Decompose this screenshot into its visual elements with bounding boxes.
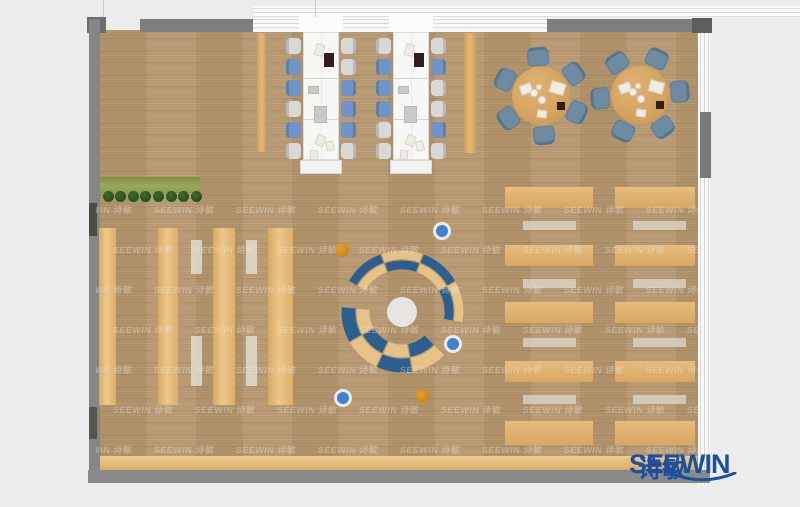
perimeter-wall [140,19,253,32]
table-plate [536,84,542,90]
desk-item-pad [398,86,409,94]
perimeter-wall [547,19,698,32]
watermark-text: SEEWIN 诗敏 [235,443,297,456]
desk-item-dark [324,53,334,67]
window-band-desk-junction [389,16,433,32]
watermark-text: SEEWIN 诗敏 [317,283,379,296]
watermark-text: SEEWIN 诗敏 [96,443,133,456]
watermark-text: SEEWIN 诗敏 [522,323,584,336]
watermark-text: SEEWIN 诗敏 [276,243,338,256]
watermark-text: SEEWIN 诗敏 [96,203,133,216]
watermark-text: SEEWIN 诗敏 [440,323,502,336]
watermark-text: SEEWIN 诗敏 [481,363,543,376]
watermark-text: SEEWIN 诗敏 [235,363,297,376]
table-item-paper [635,108,646,117]
watermark-text: SEEWIN 诗敏 [645,363,702,376]
watermark-text: SEEWIN 诗敏 [194,323,256,336]
office-chair [286,59,301,75]
watermark-text: SEEWIN 诗敏 [235,203,297,216]
office-chair [376,101,391,117]
watermark-text: SEEWIN 诗敏 [194,403,256,416]
table-item-dark [557,102,565,110]
office-chair [341,80,356,96]
office-chair [376,143,391,159]
table-plate [530,89,538,97]
office-chair [341,122,356,138]
watermark-text: SEEWIN 诗敏 [440,243,502,256]
watermark-text: SEEWIN 诗敏 [481,443,543,456]
watermark-text: SEEWIN 诗敏 [563,443,625,456]
watermark-text: SEEWIN 诗敏 [399,203,461,216]
watermark-text: SEEWIN 诗敏 [522,243,584,256]
watermark-text: SEEWIN 诗敏 [96,283,133,296]
watermark-text: SEEWIN 诗敏 [96,363,133,376]
office-chair [341,38,356,54]
floor-plan-render: SEEWIN 诗敏SEEWIN 诗敏SEEWIN 诗敏SEEWIN 诗敏SEEW… [0,0,800,507]
watermark-text: SEEWIN 诗敏 [317,203,379,216]
office-chair [286,143,301,159]
watermark-text: SEEWIN 诗敏 [604,243,666,256]
watermark-text: SEEWIN 诗敏 [563,363,625,376]
office-chair [431,122,446,138]
desk-item-dark [414,53,424,67]
watermark-text: SEEWIN 诗敏 [604,403,666,416]
watermark-text: SEEWIN 诗敏 [358,243,420,256]
office-chair [341,143,356,159]
office-chair [286,38,301,54]
watermark-text: SEEWIN 诗敏 [645,283,702,296]
office-chair [376,38,391,54]
watermark-text: SEEWIN 诗敏 [399,363,461,376]
watermark-text: SEEWIN 诗敏 [358,403,420,416]
office-chair [376,59,391,75]
office-chair [341,59,356,75]
perimeter-wall [692,18,712,33]
desk-item-pad [308,86,319,94]
watermark-text: SEEWIN 诗敏 [686,403,702,416]
watermark-text: SEEWIN 诗敏 [358,323,420,336]
watermark-text: SEEWIN 诗敏 [235,283,297,296]
table-plate [538,96,546,104]
watermark-text: SEEWIN 诗敏 [112,403,174,416]
desk-item-paper [309,150,318,161]
office-chair [286,80,301,96]
desk-end-panel [300,160,342,174]
watermark-layer: SEEWIN 诗敏SEEWIN 诗敏SEEWIN 诗敏SEEWIN 诗敏SEEW… [96,198,702,460]
watermark-text: SEEWIN 诗敏 [153,363,215,376]
desk-end-panel [390,160,432,174]
logo-swoosh-icon [671,472,737,485]
watermark-text: SEEWIN 诗敏 [153,203,215,216]
table-chair [669,80,690,104]
office-chair [341,101,356,117]
watermark-text: SEEWIN 诗敏 [522,403,584,416]
watermark-text: SEEWIN 诗敏 [153,443,215,456]
office-chair [376,80,391,96]
perimeter-wall [700,112,711,178]
office-chair [431,101,446,117]
desk-item-pad [314,106,327,123]
watermark-text: SEEWIN 诗敏 [399,283,461,296]
window-band-desk-junction [299,16,343,32]
mullion-line [315,0,316,17]
watermark-text: SEEWIN 诗敏 [645,203,702,216]
watermark-text: SEEWIN 诗敏 [563,283,625,296]
watermark-text: SEEWIN 诗敏 [276,323,338,336]
wood-plank-counter [257,33,266,152]
watermark-text: SEEWIN 诗敏 [112,243,174,256]
watermark-text: SEEWIN 诗敏 [686,323,702,336]
table-plate [637,95,645,103]
office-chair [431,80,446,96]
watermark-text: SEEWIN 诗敏 [317,363,379,376]
watermark-text: SEEWIN 诗敏 [276,403,338,416]
watermark-text: SEEWIN 诗敏 [399,443,461,456]
table-chair [590,87,611,111]
watermark-text: SEEWIN 诗敏 [481,203,543,216]
watermark-text: SEEWIN 诗敏 [604,323,666,336]
office-chair [376,122,391,138]
watermark-text: SEEWIN 诗敏 [440,403,502,416]
room-layer: SEEWIN 诗敏SEEWIN 诗敏SEEWIN 诗敏SEEWIN 诗敏SEEW… [0,0,800,507]
wood-plank-counter [464,33,476,153]
table-plate [629,88,637,96]
table-chair [526,46,550,67]
table-plate [635,83,641,89]
table-item-paper [536,109,547,118]
desk-item-pad [404,106,417,123]
watermark-text: SEEWIN 诗敏 [317,443,379,456]
watermark-text: SEEWIN 诗敏 [112,323,174,336]
office-chair [286,101,301,117]
perimeter-wall [88,470,710,483]
office-chair [286,122,301,138]
desk-item-paper [399,150,408,161]
watermark-text: SEEWIN 诗敏 [153,283,215,296]
office-chair [431,143,446,159]
table-item-dark [656,101,664,109]
watermark-text: SEEWIN 诗敏 [686,243,702,256]
watermark-text: SEEWIN 诗敏 [194,243,256,256]
office-chair [431,59,446,75]
watermark-text: SEEWIN 诗敏 [481,283,543,296]
office-chair [431,38,446,54]
watermark-text: SEEWIN 诗敏 [563,203,625,216]
